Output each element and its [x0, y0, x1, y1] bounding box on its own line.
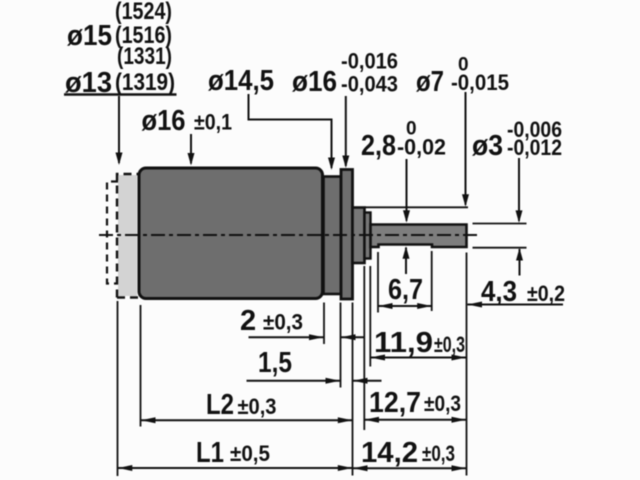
svg-text:-0,012: -0,012	[507, 135, 562, 160]
svg-text:1,5: 1,5	[258, 347, 292, 379]
svg-text:ø15: ø15	[67, 20, 112, 52]
svg-text:±0,1: ±0,1	[194, 110, 232, 135]
svg-text:6,7: 6,7	[388, 274, 423, 306]
svg-text:±0,5: ±0,5	[230, 441, 270, 466]
svg-text:ø3: ø3	[472, 130, 503, 162]
svg-text:ø16: ø16	[142, 105, 186, 137]
svg-text:±0,3: ±0,3	[263, 310, 303, 335]
svg-text:±0,3: ±0,3	[434, 332, 465, 357]
svg-text:11,9: 11,9	[374, 327, 433, 359]
svg-text:-0,016: -0,016	[341, 49, 398, 74]
svg-text:L2: L2	[206, 389, 234, 421]
svg-text:(1331): (1331)	[117, 43, 172, 70]
svg-text:-0,043: -0,043	[341, 72, 398, 97]
svg-text:-0,02: -0,02	[397, 135, 446, 160]
svg-text:±0,2: ±0,2	[527, 281, 565, 306]
svg-text:(1319): (1319)	[115, 69, 175, 96]
svg-text:L1: L1	[196, 437, 224, 469]
svg-text:±0,3: ±0,3	[424, 391, 461, 416]
svg-text:12,7: 12,7	[369, 387, 421, 419]
svg-text:-0,015: -0,015	[451, 70, 509, 95]
svg-text:ø14,5: ø14,5	[208, 65, 274, 97]
svg-text:2,8: 2,8	[361, 130, 396, 162]
svg-text:±0,3: ±0,3	[238, 394, 277, 419]
svg-text:ø16: ø16	[292, 66, 337, 98]
svg-text:ø7: ø7	[416, 66, 444, 98]
svg-text:14,2: 14,2	[361, 437, 418, 469]
svg-text:2: 2	[240, 305, 256, 337]
svg-text:4,3: 4,3	[481, 276, 517, 308]
svg-text:±0,3: ±0,3	[422, 441, 455, 466]
